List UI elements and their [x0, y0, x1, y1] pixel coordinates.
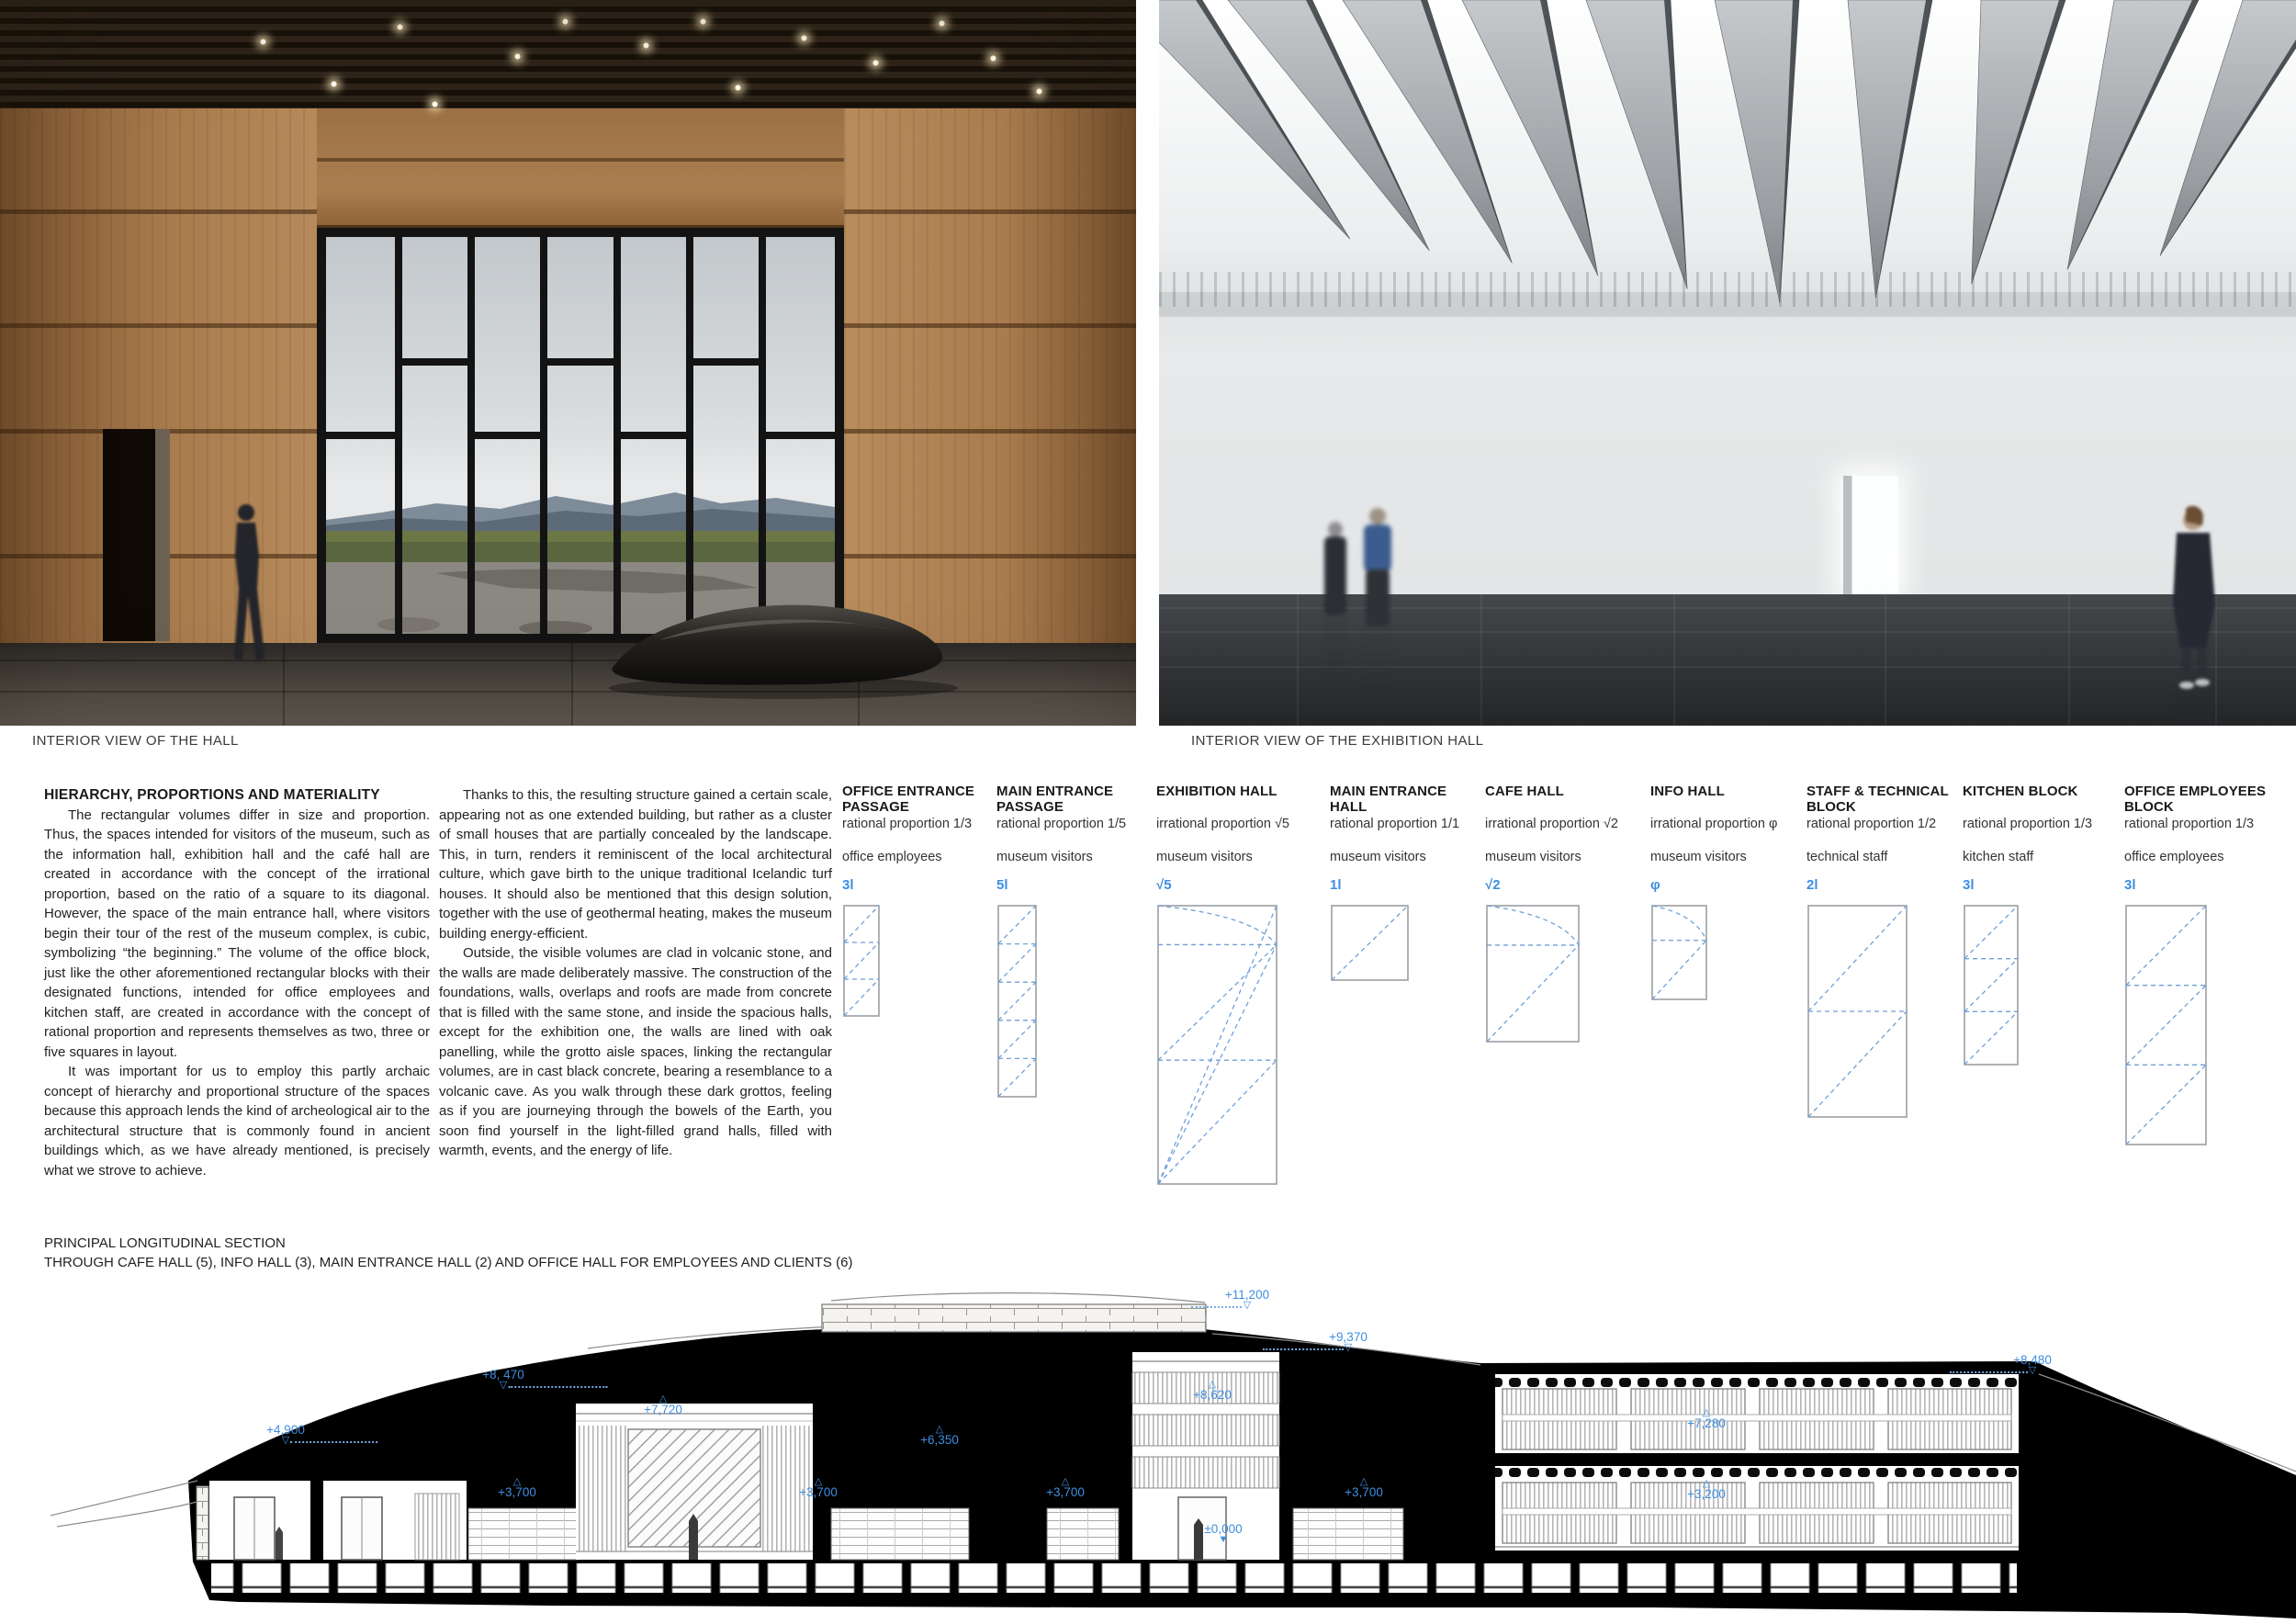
- transom: [544, 358, 616, 366]
- proportion-column: MAIN ENTRANCE HALLrational proportion 1/…: [1330, 784, 1479, 987]
- spotlight-icon: [331, 81, 337, 87]
- transom: [399, 358, 471, 366]
- audience-label: museum visitors: [1485, 850, 1634, 864]
- space-title: CAFE HALL: [1485, 784, 1634, 817]
- proportion-label: rational proportion 1/5: [996, 817, 1145, 831]
- low-wall: [1293, 1508, 1403, 1560]
- proportion-label: irrational proportion √2: [1485, 817, 1634, 831]
- skylight-fins: [1159, 0, 2296, 317]
- proportion-diagram: [842, 904, 991, 1022]
- foundation-piles: [211, 1563, 2017, 1593]
- space-title: MAIN ENTRANCE HALL: [1330, 784, 1479, 817]
- slatted-ceiling: [0, 0, 1136, 108]
- proportion-label: rational proportion 1/3: [842, 817, 991, 831]
- hall-photo-render: [0, 0, 1136, 726]
- proportion-label: rational proportion 1/3: [2124, 817, 2273, 831]
- ratio-label: 3l: [842, 877, 991, 893]
- proportion-diagram: [1330, 904, 1479, 987]
- spotlight-icon: [735, 85, 741, 91]
- space-title: OFFICE ENTRANCE PASSAGE: [842, 784, 991, 817]
- proportion-diagram: [996, 904, 1145, 1103]
- low-wall: [468, 1508, 579, 1560]
- transom: [617, 432, 690, 439]
- spotlight-icon: [260, 39, 266, 45]
- stone-parapet: [822, 1304, 1206, 1332]
- proportion-diagram: [1650, 904, 1799, 1006]
- transom: [690, 358, 762, 366]
- ratio-label: 3l: [1963, 877, 2111, 893]
- spotlight-icon: [700, 18, 706, 25]
- proportion-column: CAFE HALLirrational proportion √2museum …: [1485, 784, 1634, 1048]
- space-title: KITCHEN BLOCK: [1963, 784, 2111, 817]
- article-column-2: Thanks to this, the resulting structure …: [439, 785, 832, 1161]
- space-title: INFO HALL: [1650, 784, 1799, 817]
- longitudinal-section-drawing: [0, 1277, 2296, 1624]
- concrete-texture-band: [1159, 272, 2296, 307]
- proportion-column: STAFF & TECHNICAL BLOCKrational proporti…: [1806, 784, 1955, 1123]
- ratio-label: 5l: [996, 877, 1145, 893]
- exhibition-door-opening: [1843, 476, 1898, 597]
- audience-label: office employees: [842, 850, 991, 864]
- article-column-1: HIERARCHY, PROPORTIONS AND MATERIALITY T…: [44, 785, 430, 1180]
- proportion-label: rational proportion 1/1: [1330, 817, 1479, 831]
- article-paragraph: Outside, the visible volumes are clad in…: [439, 943, 832, 1161]
- spotlight-icon: [872, 60, 879, 66]
- proportion-diagram: [2124, 904, 2273, 1151]
- article-heading: HIERARCHY, PROPORTIONS AND MATERIALITY: [44, 785, 430, 806]
- hall-cafe: [576, 1404, 813, 1560]
- proportion-column: EXHIBITION HALLirrational proportion √5m…: [1156, 784, 1305, 1190]
- spotlight-icon: [801, 35, 807, 41]
- proportion-diagram: [1156, 904, 1305, 1190]
- proportion-diagram: [1806, 904, 1955, 1123]
- office-block: [1495, 1374, 2019, 1551]
- audience-label: museum visitors: [1330, 850, 1479, 864]
- ratio-label: 1l: [1330, 877, 1479, 893]
- section-title: PRINCIPAL LONGITUDINAL SECTION THROUGH C…: [44, 1234, 852, 1272]
- transom: [762, 432, 835, 439]
- spotlight-icon: [939, 20, 945, 27]
- space-title: EXHIBITION HALL: [1156, 784, 1305, 817]
- exhibition-photo-caption: INTERIOR VIEW OF THE EXHIBITION HALL: [1191, 733, 1483, 749]
- ratio-label: φ: [1650, 877, 1799, 893]
- space-title: STAFF & TECHNICAL BLOCK: [1806, 784, 1955, 817]
- visitor-walking: [2142, 503, 2243, 724]
- left-rooms: [197, 1481, 467, 1560]
- space-title: OFFICE EMPLOYEES BLOCK: [2124, 784, 2273, 817]
- spotlight-icon: [562, 18, 568, 25]
- spotlight-icon: [397, 24, 403, 30]
- dark-doorway: [103, 429, 170, 641]
- spotlight-icon: [1036, 88, 1042, 95]
- person-silhouette: [206, 501, 288, 675]
- proportion-diagram: [1485, 904, 1634, 1048]
- section-title-line2: THROUGH CAFE HALL (5), INFO HALL (3), MA…: [44, 1253, 852, 1272]
- proportion-label: rational proportion 1/2: [1806, 817, 1955, 831]
- presentation-board: { "palette": { "accent_blue": "#3e8ee0",…: [0, 0, 2296, 1624]
- space-title: MAIN ENTRANCE PASSAGE: [996, 784, 1145, 817]
- ratio-label: 3l: [2124, 877, 2273, 893]
- spotlight-icon: [643, 42, 649, 49]
- ratio-label: √2: [1485, 877, 1634, 893]
- proportion-column: OFFICE EMPLOYEES BLOCKrational proportio…: [2124, 784, 2273, 1151]
- proportion-label: irrational proportion √5: [1156, 817, 1305, 831]
- audience-label: museum visitors: [1156, 850, 1305, 864]
- hall-info: [1132, 1352, 1279, 1560]
- wood-header-band: [317, 108, 844, 228]
- visitor-pair: [1306, 503, 1453, 696]
- article-paragraph: It was important for us to employ this p…: [44, 1062, 430, 1180]
- audience-label: technical staff: [1806, 850, 1955, 864]
- stone-bench: [595, 592, 972, 703]
- article-paragraph: The rectangular volumes differ in size a…: [44, 806, 430, 1063]
- proportion-label: irrational proportion φ: [1650, 817, 1799, 831]
- window-wall: [317, 228, 844, 643]
- proportion-column: OFFICE ENTRANCE PASSAGErational proporti…: [842, 784, 991, 1022]
- proportion-column: INFO HALLirrational proportion φmuseum v…: [1650, 784, 1799, 1006]
- section-title-line1: PRINCIPAL LONGITUDINAL SECTION: [44, 1234, 852, 1253]
- hall-photo-caption: INTERIOR VIEW OF THE HALL: [32, 733, 239, 749]
- audience-label: museum visitors: [996, 850, 1145, 864]
- spotlight-icon: [432, 101, 438, 107]
- audience-label: kitchen staff: [1963, 850, 2111, 864]
- proportion-label: rational proportion 1/3: [1963, 817, 2111, 831]
- wood-wall-right: [844, 108, 1136, 643]
- low-wall: [831, 1508, 969, 1560]
- exhibition-photo-render: [1159, 0, 2296, 726]
- ratio-label: √5: [1156, 877, 1305, 893]
- proportion-column: MAIN ENTRANCE PASSAGErational proportion…: [996, 784, 1145, 1103]
- spotlight-icon: [990, 55, 996, 62]
- proportion-diagram: [1963, 904, 2111, 1071]
- article-paragraph: Thanks to this, the resulting structure …: [439, 785, 832, 943]
- audience-label: museum visitors: [1650, 850, 1799, 864]
- proportion-column: KITCHEN BLOCKrational proportion 1/3kitc…: [1963, 784, 2111, 1071]
- low-wall: [1047, 1508, 1119, 1560]
- audience-label: office employees: [2124, 850, 2273, 864]
- spotlight-icon: [514, 53, 521, 60]
- transom: [471, 432, 544, 439]
- ratio-label: 2l: [1806, 877, 1955, 893]
- transom: [326, 432, 399, 439]
